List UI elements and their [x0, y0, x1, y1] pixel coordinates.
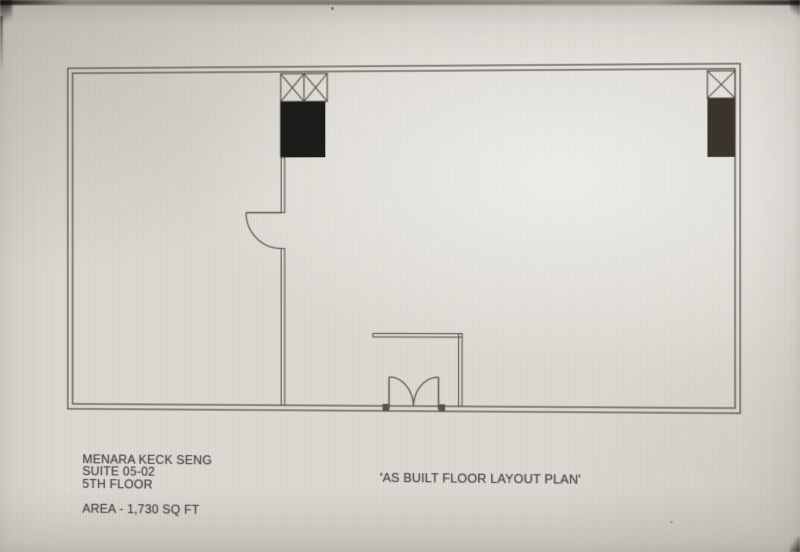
- floor-number: 5TH FLOOR: [82, 478, 212, 491]
- entrance-door-right-jamb: [439, 404, 446, 411]
- entrance-door-left-swing-arc: [389, 377, 413, 406]
- drawing-sheet: MENARA KECK SENG SUITE 05-02 5TH FLOOR A…: [7, 0, 800, 552]
- office-door-swing-arc: [246, 213, 281, 249]
- plan-title: 'AS BUILT FLOOR LAYOUT PLAN': [380, 471, 581, 487]
- vestibule-wall-right: [459, 334, 463, 407]
- outer-wall-inner-line: [73, 69, 735, 408]
- partition-wall-upper: [281, 157, 284, 212]
- drawing-info-block: MENARA KECK SENG SUITE 05-02 5TH FLOOR A…: [82, 453, 212, 516]
- entrance-door-right-swing-arc: [413, 377, 438, 406]
- left-column: [280, 101, 325, 157]
- right-column: [707, 98, 735, 157]
- dust-speck: [670, 521, 673, 523]
- dust-speck: [331, 7, 334, 10]
- entrance-door-left-jamb: [383, 404, 389, 411]
- outer-wall-outline: [68, 64, 740, 414]
- partition-wall-lower: [281, 248, 284, 405]
- area-label: AREA - 1,730 SQ FT: [82, 503, 212, 517]
- floor-plan-photo: MENARA KECK SENG SUITE 05-02 5TH FLOOR A…: [0, 0, 800, 552]
- photo-edge-left-shadow: [0, 16, 3, 74]
- vestibule-wall-top: [373, 333, 462, 337]
